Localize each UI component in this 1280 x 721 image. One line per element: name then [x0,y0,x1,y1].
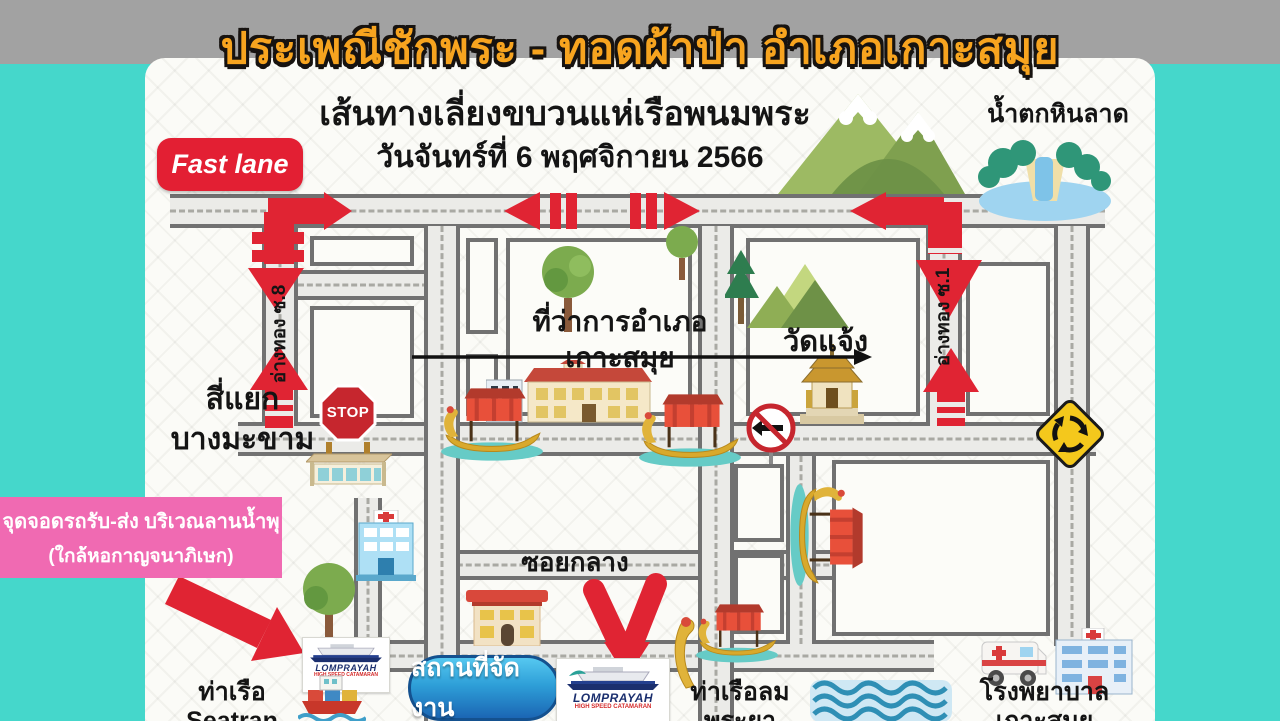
road-connector [298,270,428,300]
page-title: ประเพณีชักพระ - ทอดผ้าป่า อำเภอเกาะสมุย [0,14,1280,82]
school-building-icon [466,590,548,646]
lomprayah-tagline: HIGH SPEED CATAMARAN [575,704,652,710]
road-main-north [170,194,1105,228]
soi-klang-label: ซอยกลาง [505,548,645,578]
fast-lane-label: Fast lane [171,149,288,180]
soi-angthong-8-label: อ่างทอง ซ.8 [269,259,291,409]
mountains-icon [770,76,965,194]
catamaran-icon [307,640,385,664]
venue-badge: สถานที่จัดงาน [408,655,560,721]
market-building-icon [306,452,392,492]
procession-boat-icon [634,392,746,468]
parking-callout-line1: จุดจอดรถรับ-ส่ง บริเวณลานน้ำพุ [2,505,279,537]
procession-boat-icon [789,479,865,591]
city-block [310,236,414,266]
clinic-building-icon [356,510,416,582]
venue-label: สถานที่จัดงาน [411,648,557,721]
city-block [966,262,1050,416]
lomprayah-logo: LOMPRAYAH HIGH SPEED CATAMARAN [556,658,670,721]
waterfall-label: น้ำตกหินลาด [970,100,1146,129]
hills-trees-icon [725,222,855,334]
intersection-label: สี่แยก บางมะขาม [150,383,335,457]
catamaran-icon [563,662,663,692]
procession-boat-icon [692,602,782,664]
city-block [734,464,784,542]
hospital-label: โรงพยาบาลเกาะสมุย [942,678,1147,721]
roundabout-sign-icon [1030,394,1110,474]
waterfall-icon [975,135,1115,223]
district-office-label: ที่ว่าการอำเภอ เกาะสมุย [515,306,725,374]
procession-boat-icon [436,386,548,462]
festival-route-poster: ประเพณีชักพระ - ทอดผ้าป่า อำเภอเกาะสมุย … [0,0,1280,721]
ferry-ship-icon [298,668,366,721]
lomprayah-name: LOMPRAYAH [573,692,653,704]
road-vertical-west [424,226,460,721]
no-entry-sign-icon [744,402,798,468]
temple-label: วัดแจ้ง [758,326,893,359]
soi-angthong-1-label: อ่างทอง ซ.1 [933,242,955,392]
city-block [466,238,498,334]
fast-lane-badge: Fast lane [157,138,303,191]
pier-seatran-label: ท่าเรือ Seatran [152,678,312,721]
tree-icon [664,222,700,282]
event-date: วันจันทร์ที่ 6 พฤศจิกายน 2566 [290,134,850,181]
pier-lomprayah-label: ท่าเรือลมพระยา [655,678,825,721]
parking-callout: จุดจอดรถรับ-ส่ง บริเวณลานน้ำพุ (ใกล้หอกา… [0,497,282,578]
parking-callout-line2: (ใกล้หอกาญจนาภิเษก) [48,541,233,571]
waves-icon [810,676,952,721]
